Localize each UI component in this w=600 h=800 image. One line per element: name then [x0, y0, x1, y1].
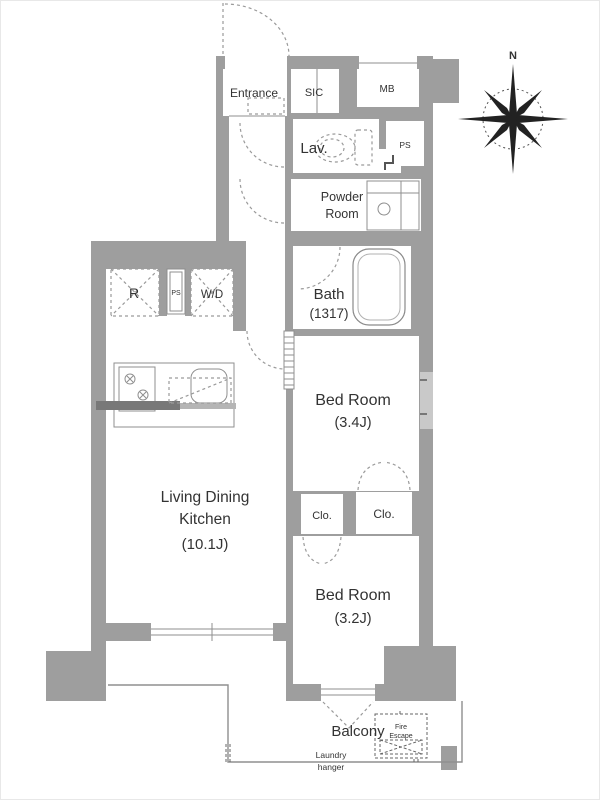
label-fire-2: Escape: [389, 733, 412, 740]
rooms: [106, 56, 424, 701]
sliding-door: [284, 331, 294, 389]
label-lav: Lav.: [300, 140, 327, 157]
entrance-door-opening: [225, 56, 287, 69]
label-balcony: Balcony: [331, 723, 385, 740]
floorplan-image: Entrance SIC MB Lav. PS Powder Room Bath…: [0, 0, 600, 800]
counter-front-light: [180, 403, 236, 409]
label-sic: SIC: [305, 87, 323, 99]
label-north: N: [509, 50, 517, 62]
label-fire-1: Fire: [395, 724, 407, 731]
bathtub-icon: [353, 249, 405, 325]
counter-front-dark: [96, 401, 180, 410]
label-ldk-1: Living Dining: [161, 489, 250, 506]
label-ps-upper: PS: [399, 140, 411, 150]
label-entrance: Entrance: [230, 86, 278, 100]
label-laundry-1: Laundry: [316, 750, 347, 760]
hallway-lower: [246, 241, 285, 331]
label-powder-1: Powder: [321, 190, 363, 204]
label-mb: MB: [380, 84, 395, 95]
label-ps-mid: PS: [171, 290, 181, 297]
label-clo2: Clo.: [373, 507, 394, 521]
label-bed1: Bed Room: [315, 392, 391, 409]
pipe-nook: [379, 149, 401, 173]
label-bed2-size: (3.2J): [334, 611, 371, 627]
label-ldk-size: (10.1J): [182, 536, 229, 553]
label-bed2: Bed Room: [315, 587, 391, 604]
label-fridge: R: [129, 285, 139, 301]
compass-rose-icon: [458, 64, 568, 174]
label-laundry-2: hanger: [318, 762, 345, 772]
balcony-door-opening: [321, 684, 375, 701]
label-ldk-2: Kitchen: [179, 511, 231, 528]
label-powder-2: Room: [325, 207, 358, 221]
label-bed1-size: (3.4J): [334, 415, 371, 431]
floorplan-svg: Entrance SIC MB Lav. PS Powder Room Bath…: [1, 1, 600, 800]
label-clo1: Clo.: [312, 510, 332, 522]
label-washer: W/D: [201, 289, 223, 301]
label-bath: Bath: [314, 286, 345, 303]
void-below-ldk: [106, 641, 286, 701]
label-bath-size: (1317): [309, 306, 348, 321]
entrance-door-swing: [225, 4, 289, 56]
